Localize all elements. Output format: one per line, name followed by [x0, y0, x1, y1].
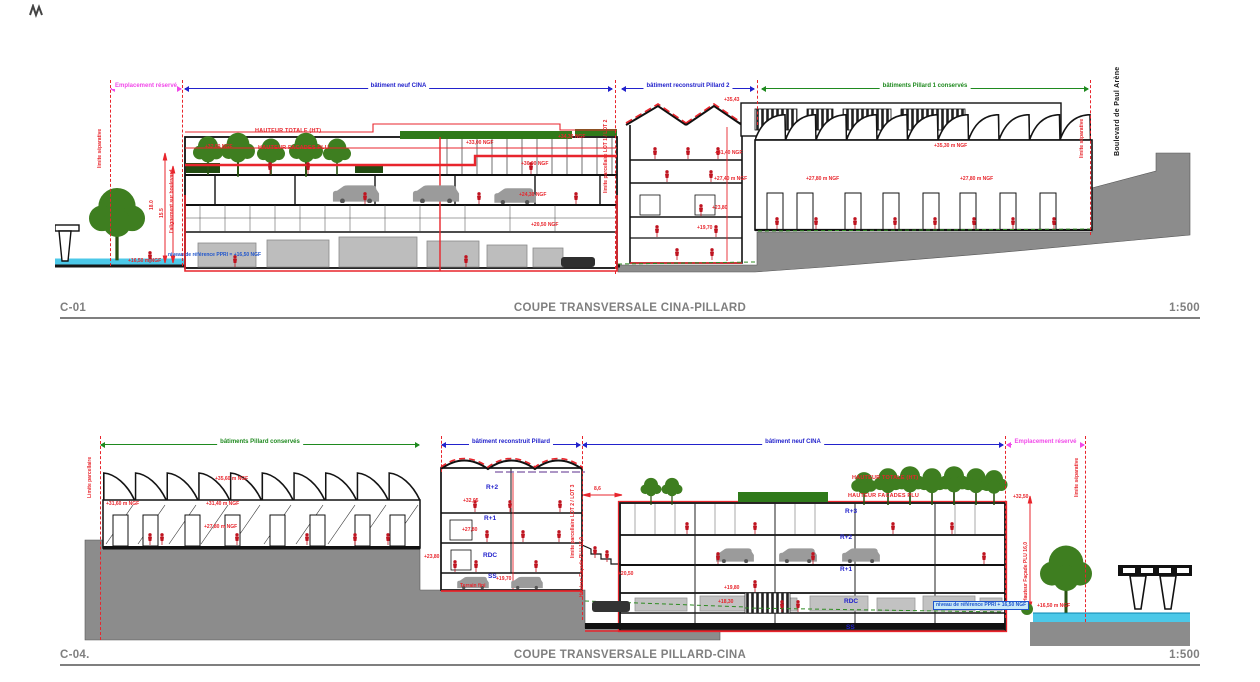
floor-label: R+2	[486, 485, 498, 492]
dim-batiment-neuf-cina: bâtiment neuf CINA	[582, 441, 1004, 448]
dim-label: bâtiments Pillard conservés	[217, 439, 303, 445]
hauteur-facades-label: HAUTEUR FACADES PLU	[848, 494, 919, 500]
boundary-label-lot: limite parcellaire LOT 1 / LOT 2	[604, 120, 609, 193]
vertical-dim-value: 15.5	[160, 208, 165, 218]
tree	[89, 188, 145, 260]
dim-label: Emplacement réservé	[1011, 439, 1079, 445]
level-annotation: +35,30 m NGF	[934, 144, 967, 149]
ppri-reference: niveau de référence PPRI + 16,50 NGF	[933, 601, 1029, 610]
dark-car	[561, 257, 595, 267]
dim-batiments-pillard-1-conserves: bâtiments Pillard 1 conservés	[761, 85, 1089, 92]
hauteur-totale-label: HAUTEUR TOTALE (HT)	[852, 476, 918, 482]
level-annotation: +32,50	[1013, 495, 1028, 500]
boundary-label-limite-separative-right: limite séparative	[1080, 119, 1085, 158]
sawtooth-roof	[104, 473, 420, 500]
floor-label: R+1	[484, 516, 496, 523]
hauteur-totale-label: HAUTEUR TOTALE (HT)	[255, 129, 321, 135]
boundary-line	[615, 80, 616, 274]
dim-emplacement-reserve: Emplacement réservé	[1006, 441, 1085, 448]
boundary-line	[110, 80, 111, 266]
dim-batiments-pillard-conserves: bâtiments Pillard conservés	[100, 441, 420, 448]
dim-batiment-reconstruit-pillard: bâtiment reconstruit Pillard	[441, 441, 581, 448]
level-annotation: Terrain fini	[460, 584, 485, 589]
level-annotation: +23,80	[712, 206, 727, 211]
dim-batiment-neuf-cina: bâtiment neuf CINA	[184, 85, 613, 92]
basement-slab	[585, 623, 1005, 629]
level-annotation: +18,30	[718, 600, 733, 605]
sheet-title-c04: COUPE TRANSVERSALE PILLARD-CINA	[60, 650, 1200, 662]
facade-plu-label-left: Hauteur Façade PLU 16,0	[580, 537, 585, 597]
boundary-line	[441, 436, 442, 472]
boundary-label-alignement: l'alignement sur boulevard	[170, 170, 175, 233]
dim-label: bâtiment reconstruit Pillard	[469, 439, 553, 445]
dim-emplacement-reserve: Emplacement réservé	[110, 85, 182, 92]
floor-label: R+2	[840, 535, 852, 542]
boundary-label-limite-parcellaire: Limite parcellaire	[88, 457, 93, 498]
level-annotation: +27,80 m NGF	[806, 177, 839, 182]
level-annotation: +32,00 NGF	[205, 145, 232, 150]
level-annotation: +30,00 NGF	[521, 162, 548, 167]
boundary-label-limite-separative-left: limite séparative	[98, 129, 103, 168]
boundary-line	[100, 436, 101, 640]
dark-car	[592, 601, 630, 612]
level-annotation: +27,80 m NGF	[960, 177, 993, 182]
dim-label: bâtiment neuf CINA	[762, 439, 824, 445]
hauteur-facades-label: HAUTEUR FACADES PLU	[258, 146, 329, 152]
level-annotation: +20,50 NGF	[531, 223, 558, 228]
boundary-line	[1005, 436, 1006, 618]
boundary-line	[1085, 436, 1086, 622]
street-label: Boulevard de Paul Arène	[1114, 67, 1121, 157]
level-annotation: +31,60 m NGF	[106, 502, 139, 507]
sheet-title-c01: COUPE TRANSVERSALE CINA-PILLARD	[60, 303, 1200, 315]
dim-label: Emplacement réservé	[112, 83, 180, 89]
level-annotation: +27,40 m NGF	[714, 177, 747, 182]
boundary-label-limite-separative: limite séparative	[1075, 458, 1080, 497]
level-annotation: +16,50 m NGF	[128, 259, 161, 264]
level-annotation: +27,80 m NGF	[204, 525, 237, 530]
dim-batiment-reconstruit-pillard-2: bâtiment reconstruit Pillard 2	[621, 85, 755, 92]
sheet-scale-c04: 1:500	[1100, 650, 1200, 662]
level-annotation: +32,05	[463, 499, 478, 504]
level-annotation: +31,40 m NGF	[206, 502, 239, 507]
level-annotation: +16,50 m NGF	[1037, 604, 1070, 609]
water	[1033, 613, 1190, 622]
title-rule	[60, 317, 1200, 319]
level-annotation: +35,60 m NGF	[215, 477, 248, 482]
facade-plu-label-right: Hauteur Façade PLU 16,0	[1024, 542, 1029, 602]
boundary-line	[182, 80, 183, 266]
level-annotation: +34,30 NGF	[558, 135, 585, 140]
width-dim-value: 8,6	[594, 487, 601, 492]
stairs	[582, 545, 621, 564]
floor-label: R+1	[840, 567, 852, 574]
floor-label: SS	[846, 625, 855, 632]
c04-section-drawing	[55, 425, 1205, 655]
level-annotation: +19,80	[724, 586, 739, 591]
building-pillard-2	[626, 104, 742, 263]
vertical-dim-value: 18.0	[150, 200, 155, 210]
sheet: { "c01": { "ref": "C-01", "title": "COUP…	[0, 0, 1260, 682]
level-annotation: +19,70	[496, 577, 511, 582]
level-annotation: +27,80	[462, 528, 477, 533]
bridge-piers-left	[55, 225, 79, 261]
ppri-reference: niveau de référence PPRI = +16,50 NGF	[168, 253, 261, 258]
level-annotation: +35,43	[724, 98, 739, 103]
level-annotation: +31,40 NGF	[715, 151, 742, 156]
building-cina	[185, 124, 617, 271]
sheet-scale-c01: 1:500	[1100, 303, 1200, 315]
floor-label: RDC	[844, 599, 858, 606]
level-annotation: +23,80	[424, 555, 439, 560]
dim-label: bâtiment neuf CINA	[368, 83, 430, 89]
level-annotation: +20,50	[618, 572, 633, 577]
dim-label: bâtiment reconstruit Pillard 2	[643, 83, 732, 89]
louvre-grille	[745, 593, 790, 613]
title-rule	[60, 664, 1200, 666]
floor-label: R+3	[845, 509, 857, 516]
boundary-line	[1090, 80, 1091, 235]
corner-mark	[28, 4, 46, 18]
level-annotation: +33,00 NGF	[466, 141, 493, 146]
bridge-piers-right	[1118, 565, 1192, 609]
dim-label: bâtiments Pillard 1 conservés	[880, 83, 971, 89]
roof-hedge	[738, 492, 828, 502]
level-annotation: +24,30 NGF	[519, 193, 546, 198]
building-pillard-reconstruit	[441, 459, 621, 592]
building-pillard-1	[741, 103, 1092, 230]
floor-label: RDC	[483, 553, 497, 560]
boundary-line	[757, 80, 758, 125]
level-annotation: +19,70	[697, 226, 712, 231]
boundary-label-lot: limite parcellaire LOT 2 / LOT 3	[571, 485, 576, 558]
